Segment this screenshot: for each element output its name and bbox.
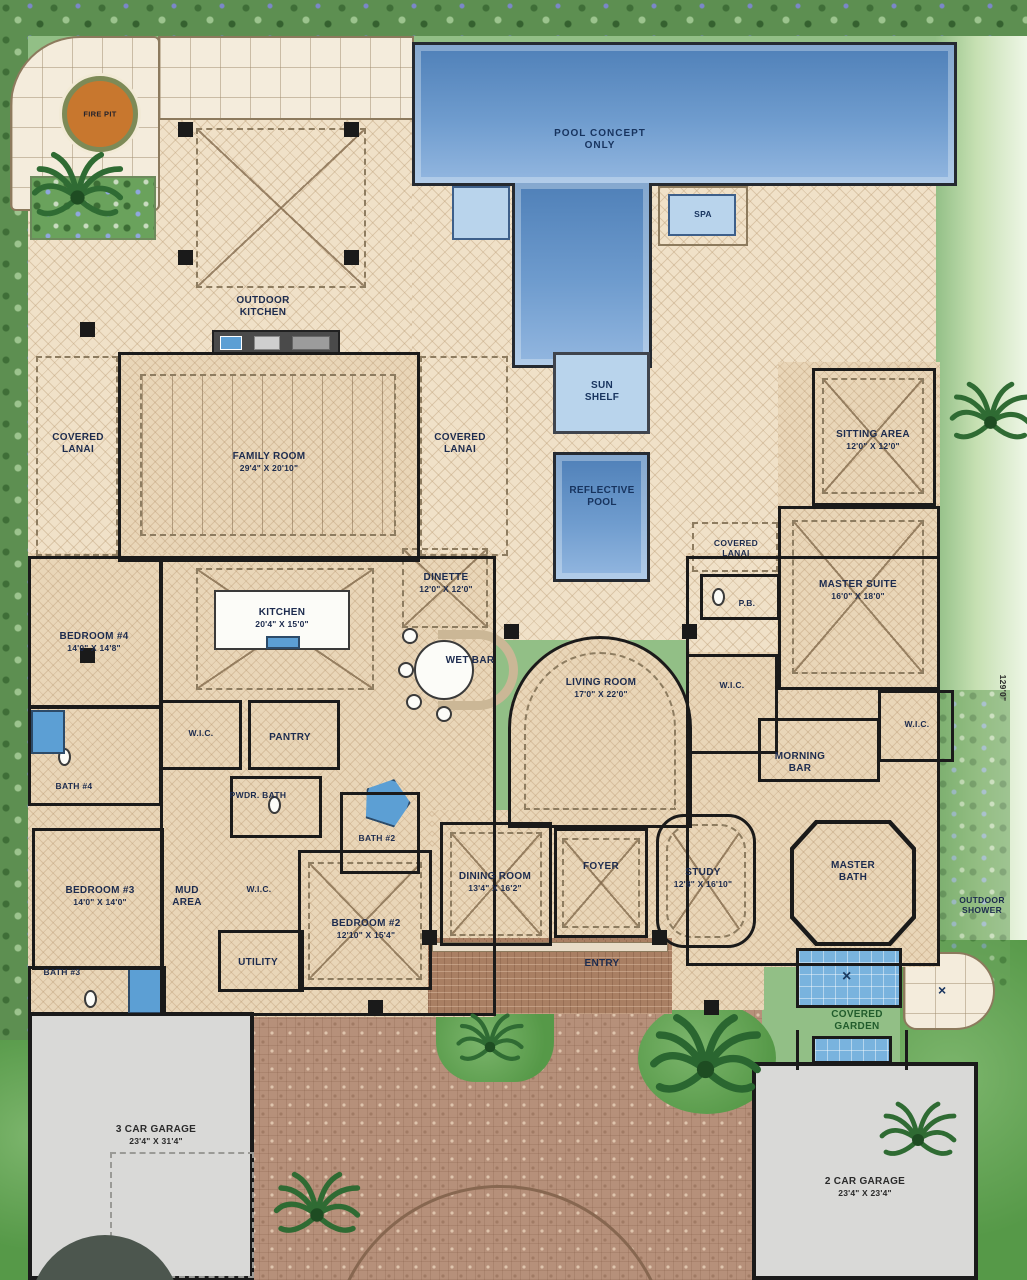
top-hedge [0, 0, 1027, 36]
room-label-wic-bed2: W.I.C. [234, 884, 284, 894]
deck-post-1 [80, 322, 95, 337]
room-label-pwdr-bath: PWDR. BATH [212, 790, 304, 800]
reflective-pool [553, 452, 650, 582]
pool-stem [512, 183, 652, 368]
covered-lanai-left-outline [36, 356, 118, 556]
room-label-bedroom-4: BEDROOM #414'0" X 14'8" [46, 631, 142, 653]
room-label-wic-pantry: W.I.C. [176, 728, 226, 738]
entry-post-sw [368, 1000, 383, 1015]
pool-shelf-step [452, 186, 510, 240]
pwdr-bath-walls [230, 776, 322, 838]
room-label-family-room: FAMILY ROOM29'4" X 20'10" [204, 451, 334, 473]
palm-tree-icon [878, 1100, 958, 1180]
palm-tree-icon [948, 380, 1027, 465]
room-label-foyer: FOYER [571, 861, 631, 873]
room-label-dinette: DINETTE12'0" X 12'0" [400, 572, 492, 594]
room-label-dining-room: DINING ROOM13'4" X 16'2" [448, 871, 542, 893]
room-label-bath-2: BATH #2 [358, 833, 396, 843]
palm-tree-icon [648, 1012, 763, 1127]
court-post-1 [504, 624, 519, 639]
entry-post-ne [652, 930, 667, 945]
outdoor-kitchen-pergola [196, 128, 366, 288]
room-label-covered-lanai-small: COVERED LANAI [706, 538, 766, 558]
room-label-wet-bar: WET BAR [434, 655, 506, 667]
patio-steps [158, 36, 414, 120]
covered-lanai-mid-outline [420, 356, 508, 556]
shower-drain: × [842, 968, 851, 986]
room-label-sun-shelf: SUN SHELF [574, 380, 630, 404]
room-label-bedroom-3: BEDROOM #314'0" X 14'0" [51, 885, 149, 907]
dimension-right-side: 129'0" [998, 663, 1008, 713]
room-label-outdoor-shower: OUTDOOR SHOWER [949, 895, 1015, 915]
pool-main [412, 42, 957, 186]
room-label-bedroom-2: BEDROOM #212'10" X 15'4" [314, 918, 418, 940]
room-label-master-suite: MASTER SUITE16'0" X 18'0" [806, 579, 910, 601]
room-label-study: STUDY12'8" X 16'10" [656, 867, 750, 889]
room-label-outdoor-kitchen: OUTDOOR KITCHEN [220, 295, 306, 319]
pergola-post-ne [344, 122, 359, 137]
room-label-garage-2: 2 CAR GARAGE23'4" X 23'4" [809, 1176, 921, 1198]
room-label-morning-bar: MORNING BAR [764, 751, 836, 775]
room-label-sitting-area: SITTING AREA12'0" X 12'0" [826, 429, 920, 451]
room-label-garage-3: 3 CAR GARAGE23'4" X 31'4" [100, 1124, 212, 1146]
room-label-utility: UTILITY [227, 957, 289, 969]
palm-tree-icon [272, 1170, 362, 1260]
room-label-wic-right: W.I.C. [892, 719, 942, 729]
entry-post-nw [422, 930, 437, 945]
room-label-spa: SPA [680, 209, 726, 219]
pergola-post-nw [178, 122, 193, 137]
pergola-post-se [344, 250, 359, 265]
room-label-pantry: PANTRY [259, 732, 321, 744]
room-label-pb: P.B. [732, 598, 762, 608]
bath4-walls [28, 706, 162, 806]
floor-plan-canvas: × × [0, 0, 1027, 1280]
room-label-fire-pit: FIRE PIT [79, 110, 121, 119]
room-label-covered-lanai-left: COVERED LANAI [45, 432, 111, 456]
covered-garden-walls [796, 1030, 908, 1070]
shower-drain-star: × [938, 982, 946, 998]
room-label-reflective-pool: REFLECTIVE POOL [561, 485, 643, 509]
outdoor-kitchen-counter [212, 330, 340, 354]
room-label-bath-3: BATH #3 [26, 967, 98, 977]
court-post-2 [682, 624, 697, 639]
room-label-mud-area: MUD AREA [165, 885, 209, 909]
room-label-covered-lanai-mid: COVERED LANAI [427, 432, 493, 456]
room-label-entry: ENTRY [571, 958, 633, 970]
living-room-walls [508, 636, 692, 828]
room-label-master-bath: MASTER BATH [822, 860, 884, 884]
foyer-walls [554, 828, 648, 938]
room-label-wic-living: W.I.C. [707, 680, 757, 690]
room-label-covered-garden: COVERED GARDEN [817, 1009, 897, 1033]
palm-tree-icon [455, 1012, 525, 1082]
room-label-bath-4: BATH #4 [55, 781, 93, 791]
room-label-kitchen: KITCHEN20'4" X 15'0" [222, 607, 342, 629]
pergola-post-sw [178, 250, 193, 265]
palm-tree-icon [30, 150, 125, 245]
room-label-pool: POOL CONCEPT ONLY [554, 128, 646, 152]
room-label-living-room: LIVING ROOM17'0" X 22'0" [549, 677, 653, 699]
